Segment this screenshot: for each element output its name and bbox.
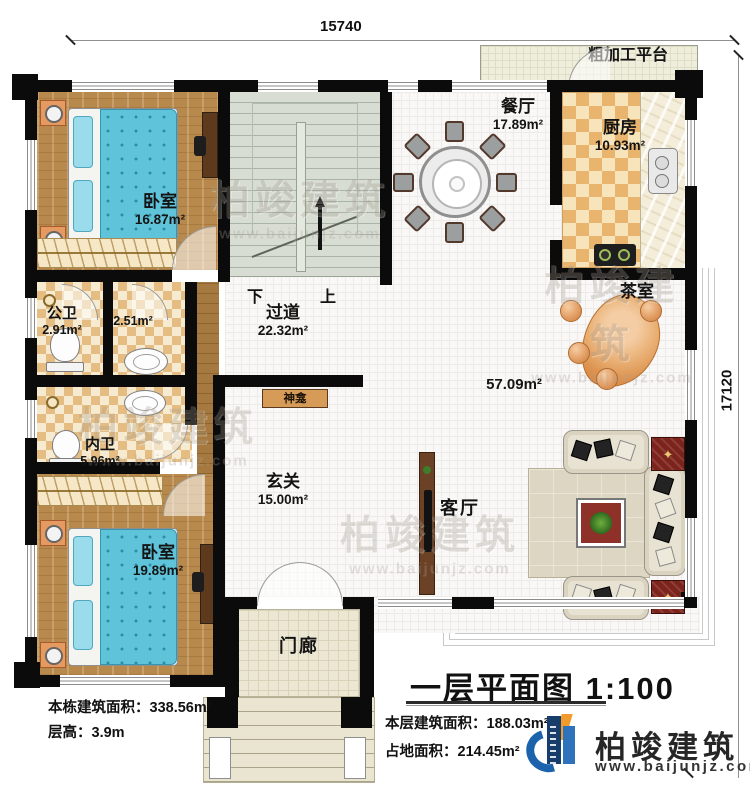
room-label-foyer: 玄关 15.00m² [258,472,308,508]
tv [424,490,432,552]
tea-stool [596,368,618,390]
room-label-bedroom1: 卧室 16.87m² [135,192,185,228]
terrace-outline [455,633,703,634]
window [685,350,697,420]
wall-segment [452,597,494,609]
wardrobe [37,238,177,268]
room-label-tea-room: 茶室 [620,282,654,302]
stair-arrow-shaft [318,204,322,250]
pillow [73,180,93,232]
nightstand [40,100,66,126]
window [25,545,37,637]
wall-segment [103,282,113,375]
window [685,518,697,597]
dimension-line-right [738,55,739,778]
wall-segment [360,597,374,697]
note-floor-height: 层高：3.9m [48,721,125,742]
note-footprint: 占地面积：214.45m² [385,740,520,761]
wall-segment [185,282,197,425]
tea-stool [560,300,582,322]
window [258,80,318,92]
window [685,120,697,186]
logo-building-blue [563,726,575,764]
window [60,675,170,687]
wardrobe [37,476,163,506]
wall-segment [380,80,392,285]
living-area-label: 57.09m² [486,376,542,394]
burner [618,249,630,261]
floor-plan-canvas: 15740 17120 粗加工平台 [0,0,750,794]
pillow [73,600,93,650]
stair-rail [296,122,306,272]
shower-head-icon [46,396,59,409]
wall-segment [343,597,374,609]
window [378,597,452,609]
dimension-top-label: 15740 [320,18,362,35]
terrace-outline [702,268,703,634]
terrace-outline [443,645,715,646]
pillow [73,116,93,168]
washbasin [124,348,168,375]
wall-segment [25,375,185,387]
wall-segment [225,597,239,697]
toilet [52,430,80,460]
terrace-outline [714,268,715,646]
dimension-right-label: 17120 [718,370,735,412]
dimension-line-top [70,40,735,41]
window [494,597,684,609]
window [72,80,174,92]
room-label-porch: 门廊 [279,636,319,657]
plant [590,512,612,534]
step-post [344,737,366,779]
room-label-public-bath: 公卫 2.91m² [42,305,82,337]
tea-stool [568,342,590,364]
step-post [209,737,231,779]
stairs-up-label: 上 [320,283,336,307]
room-label-corridor: 过道 22.32m² [258,303,308,339]
desk-chair [192,572,204,592]
brand-url: www.baijunjz.com [595,758,750,775]
wall-segment [213,375,363,387]
logo-building-dark [547,716,561,764]
window [25,140,37,210]
wall-segment [550,268,697,280]
room-label-inner-bath: 内卫 5.96m² [80,436,120,468]
sofa-cushion [593,438,613,458]
wall-segment [25,270,172,282]
nightstand [40,520,66,546]
note-building-area: 本栋建筑面积：338.56m² [48,696,212,717]
window [25,298,37,338]
shrine-console: 神龛 [262,389,328,408]
room-label-dining: 餐厅 17.89m² [493,97,543,133]
terrace-outline [449,639,709,640]
terrace-outline [708,268,709,640]
wall-pier [675,70,703,98]
sink-basin [655,156,669,170]
wall-segment [550,80,562,205]
sink-basin [655,174,669,188]
desk-chair [194,136,206,156]
window [25,400,37,438]
window [452,80,547,92]
wall-segment [213,387,225,597]
dining-table [419,146,491,218]
room-label-living-room: 客厅 [440,498,480,519]
wall-segment [218,80,230,282]
room-label-washroom: 2.51m² [113,314,153,329]
porch-column [341,697,372,728]
dining-chair [496,173,517,192]
wall-pier [14,662,40,688]
wall-segment [225,597,257,609]
dining-chair [393,173,414,192]
room-label-bedroom2: 卧室 19.89m² [133,543,183,579]
plant-small [423,466,431,474]
window [388,80,418,92]
side-table: ✦ [651,437,685,471]
dining-chair [445,121,464,142]
washbasin [124,390,166,416]
wall-segment [213,597,225,687]
pillow [73,536,93,586]
burner [599,249,611,261]
toilet-tank [46,362,84,372]
brand-logo-icon [528,714,586,778]
room-label-kitchen: 厨房 10.93m² [595,118,645,154]
note-floor-area: 本层建筑面积：188.03m² [385,712,549,733]
tea-stool [640,300,662,322]
wall-pier [12,74,38,100]
nightstand [40,642,66,668]
title-underline [406,701,606,706]
dining-chair [445,222,464,243]
